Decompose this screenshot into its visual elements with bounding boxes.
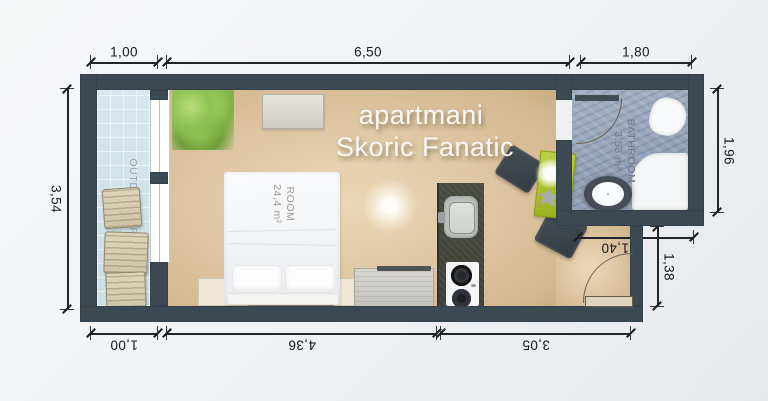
dimension-value: 1,38	[662, 253, 677, 281]
watermark-line2: Skoric Fanatic	[336, 132, 514, 163]
outdoor-table	[103, 231, 148, 275]
washbasin-drain	[607, 193, 609, 195]
dimension-value: 3,05	[522, 338, 550, 353]
wall-bathroom-bottom	[556, 210, 704, 226]
sink-basin	[449, 202, 475, 234]
wall-bathroom-right	[688, 74, 704, 226]
dimension-value: 4,36	[288, 338, 316, 353]
sink-tap	[438, 212, 445, 223]
wall-top	[80, 74, 704, 90]
room-area: 24,4 m²	[270, 184, 283, 224]
dimension-value: 1,80	[622, 45, 650, 60]
kitchen-sink	[444, 196, 478, 238]
bathroom-area: 3,53 m²	[611, 119, 624, 184]
bed-base	[227, 293, 339, 305]
bathroom-name: BATHROOM	[624, 119, 637, 184]
watermark-line1: apartmani	[359, 100, 484, 131]
pillow	[232, 265, 282, 293]
dimension-value: 3,54	[49, 185, 64, 213]
dimension-value: 6,50	[354, 45, 382, 60]
pillow	[285, 265, 335, 293]
shower	[632, 153, 688, 210]
dimension-value: 1,00	[110, 338, 138, 353]
stove-burner	[451, 265, 472, 286]
bed: ROOM 24,4 m²	[224, 172, 340, 305]
bathroom-label: BATHROOM 3,53 m²	[611, 119, 637, 184]
dresser-top-item	[377, 266, 431, 271]
wall-bathroom-left-upper	[556, 74, 572, 100]
wall-bottom	[80, 306, 643, 322]
ceiling-light-glow	[362, 178, 418, 234]
dresser	[354, 268, 434, 308]
plant	[172, 84, 234, 150]
dimension-value: 1,96	[722, 137, 737, 165]
room-label: ROOM 24,4 m²	[270, 184, 296, 224]
outdoor-chair	[102, 187, 143, 230]
stove-knob	[471, 284, 476, 287]
wall-stub-outdoor	[150, 262, 168, 306]
window-mullion	[150, 172, 168, 184]
window-mullion	[150, 90, 168, 100]
cabinet	[262, 94, 324, 129]
dimension-value: 1,00	[110, 45, 138, 60]
stove	[446, 262, 479, 306]
room-name: ROOM	[283, 184, 296, 224]
wall-left	[80, 74, 97, 322]
floor-plan: OUTDOOR SPACE 3,54 m² BATHROOM 3,53 m² R…	[0, 0, 768, 401]
